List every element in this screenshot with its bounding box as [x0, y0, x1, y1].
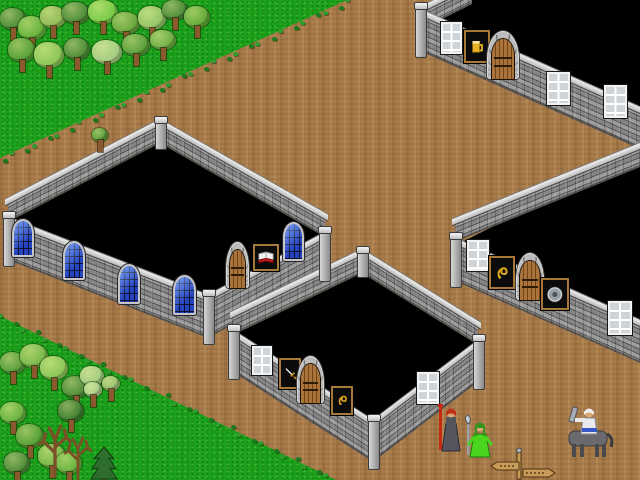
- canopy-highlight: [62, 2, 90, 24]
- grass-edge-tuft: [54, 134, 59, 138]
- post-cap: [472, 334, 486, 342]
- post-cap: [449, 232, 463, 240]
- direction-signpost[interactable]: [489, 447, 559, 480]
- grass-edge-tuft: [231, 425, 236, 429]
- tree-trunk: [74, 22, 79, 34]
- grass-edge-tuft: [79, 354, 84, 358]
- tree-canopy: [34, 42, 64, 68]
- grass-edge-tuft: [63, 346, 68, 350]
- grass-edge-tuft: [137, 98, 142, 102]
- tree-trunk: [47, 66, 52, 78]
- canopy-highlight: [8, 38, 36, 62]
- grass-edge-tuft: [48, 136, 53, 140]
- lattice-window: [467, 240, 489, 271]
- tavern-building-door[interactable]: [487, 31, 519, 79]
- door-hinge: [231, 274, 244, 276]
- tree-canopy: [184, 6, 210, 28]
- tree-trunk: [101, 22, 106, 34]
- library-building-corner-post: [319, 230, 331, 282]
- grass-edge-tuft: [20, 328, 25, 332]
- canopy-highlight: [64, 38, 90, 60]
- library-building-sign-book[interactable]: [253, 244, 279, 271]
- grass-edge-tuft: [233, 52, 238, 56]
- tree-trunk: [173, 18, 178, 30]
- grass-edge-tuft: [339, 6, 344, 10]
- weapon-shop-building-corner-post: [473, 338, 485, 390]
- grass-edge-tuft: [144, 386, 149, 390]
- tree-trunk: [109, 389, 114, 401]
- tree-canopy: [4, 452, 30, 474]
- sword-icon: [283, 362, 298, 384]
- grass-edge-tuft: [166, 83, 171, 87]
- tree-trunk: [20, 60, 25, 72]
- grass-edge-tuft: [25, 149, 30, 153]
- gold-crest-icon: [335, 390, 350, 411]
- canopy-highlight: [122, 34, 150, 56]
- shield-icon: [545, 283, 565, 306]
- deciduous-tree: [8, 38, 36, 74]
- door-hinge: [522, 286, 538, 288]
- lattice-window: [417, 372, 439, 404]
- mug-icon: [468, 35, 486, 59]
- door-hinge: [522, 279, 538, 281]
- grass-edge-tuft: [255, 42, 260, 46]
- stained-glass-window: [283, 222, 304, 261]
- game-viewport[interactable]: [0, 0, 640, 480]
- tree-trunk: [32, 366, 37, 378]
- grass-edge-tuft: [278, 29, 283, 33]
- tree-trunk: [105, 62, 110, 74]
- stained-glass-window: [12, 219, 34, 257]
- grass-edge-tuft: [323, 11, 328, 15]
- tree-canopy: [8, 38, 36, 62]
- grass-edge-tuft: [211, 59, 216, 63]
- grass-edge-tuft: [252, 439, 257, 443]
- grass-edge-tuft: [215, 423, 220, 427]
- grass-edge-tuft: [209, 418, 214, 422]
- grass-edge-tuft: [274, 449, 279, 453]
- tree-trunk: [51, 26, 56, 38]
- post-cap: [154, 116, 168, 124]
- door-hinge: [231, 267, 244, 269]
- weapon-shop-building-sign-crest[interactable]: [331, 386, 353, 415]
- grass-edge-tuft: [280, 455, 285, 459]
- grass-edge-tuft: [3, 159, 8, 163]
- signpost-icon: [489, 447, 559, 480]
- deciduous-tree: [62, 2, 90, 36]
- wooden-door: [492, 39, 514, 79]
- grass-edge-tuft: [272, 37, 277, 41]
- post-cap: [414, 2, 428, 10]
- grass-edge-tuft: [0, 314, 3, 318]
- grass-edge-tuft: [166, 393, 171, 397]
- tree-canopy: [0, 402, 26, 424]
- grass-edge-tuft: [121, 103, 126, 107]
- library-building-door[interactable]: [226, 242, 249, 288]
- armoury-building-sign-crest[interactable]: [489, 256, 515, 289]
- door-hinge: [494, 65, 512, 67]
- grass-edge-tuft: [296, 457, 301, 461]
- wooden-door: [520, 261, 539, 300]
- post-cap: [202, 289, 216, 297]
- weapon-shop-building-corner-post: [357, 250, 369, 278]
- grass-edge-tuft: [106, 370, 111, 374]
- grass-edge-tuft: [150, 391, 155, 395]
- deciduous-tree: [34, 42, 64, 80]
- post-cap: [356, 246, 370, 254]
- grass-edge-tuft: [144, 90, 149, 94]
- tree-trunk: [52, 378, 57, 390]
- grass-edge-tuft: [93, 118, 98, 122]
- weapon-shop-building-corner-post: [368, 418, 380, 470]
- grass-edge-tuft: [99, 113, 104, 117]
- canopy-highlight: [4, 452, 30, 474]
- wooden-door: [301, 364, 319, 403]
- pine-tree-icon: [90, 438, 118, 480]
- tree-trunk: [195, 26, 200, 38]
- lattice-window: [608, 301, 632, 335]
- weapon-shop-building-corner-post: [228, 328, 240, 380]
- weapon-shop-building-door[interactable]: [297, 356, 324, 403]
- library-building-corner-post: [155, 120, 167, 150]
- canopy-highlight: [112, 12, 140, 34]
- stained-glass-window: [118, 264, 140, 304]
- lattice-window: [252, 346, 272, 375]
- post-cap: [318, 226, 332, 234]
- grass-edge-tuft: [227, 57, 232, 61]
- tree-trunk: [15, 472, 20, 480]
- grass-edge-tuft: [171, 402, 176, 406]
- grass-edge-tuft: [249, 44, 254, 48]
- deciduous-tree: [150, 30, 176, 62]
- tree-trunk: [161, 48, 166, 60]
- grass-edge-tuft: [258, 441, 263, 445]
- canopy-highlight: [0, 402, 26, 424]
- tree-canopy: [64, 38, 90, 60]
- grass-edge-tuft: [187, 407, 192, 411]
- deciduous-tree: [122, 34, 150, 68]
- armoury-building-sign-shield[interactable]: [541, 278, 569, 310]
- grass-edge-tuft: [115, 105, 120, 109]
- canopy-highlight: [150, 30, 176, 50]
- grass-edge-tuft: [85, 359, 90, 363]
- tree-canopy: [92, 40, 122, 64]
- tree-trunk: [98, 140, 103, 152]
- gold-crest-icon: [493, 261, 511, 285]
- door-hinge: [303, 382, 318, 384]
- post-cap: [2, 211, 16, 219]
- deciduous-tree: [64, 38, 90, 72]
- wooden-door: [230, 250, 246, 288]
- tree-trunk: [91, 395, 96, 407]
- canopy-highlight: [34, 42, 64, 68]
- deciduous-tree: [84, 382, 102, 409]
- open-book-icon: [257, 248, 275, 267]
- deciduous-tree: [102, 376, 120, 403]
- library-building-corner-post: [203, 293, 215, 345]
- lattice-window: [441, 22, 462, 54]
- grass-edge-tuft: [32, 144, 37, 148]
- tree-canopy: [122, 34, 150, 56]
- armoury-building-door[interactable]: [516, 253, 544, 300]
- grass-edge-tuft: [160, 88, 165, 92]
- lattice-window: [547, 72, 570, 105]
- tree-trunk: [75, 58, 80, 70]
- deciduous-tree: [4, 452, 30, 480]
- armoury-building-corner-post: [450, 236, 462, 288]
- stained-glass-window: [173, 275, 196, 315]
- tavern-building-corner-post: [415, 6, 427, 58]
- grass-edge-tuft: [101, 362, 106, 366]
- deciduous-tree: [92, 40, 122, 76]
- canopy-highlight: [92, 40, 122, 64]
- grass-edge-tuft: [36, 330, 41, 334]
- door-hinge: [303, 389, 318, 391]
- tree-canopy: [150, 30, 176, 50]
- grass-edge-tuft: [14, 322, 19, 326]
- deciduous-tree: [92, 128, 108, 154]
- tree-trunk: [11, 372, 16, 384]
- centaur[interactable]: [559, 404, 617, 460]
- tree-canopy: [62, 2, 90, 24]
- deciduous-tree: [184, 6, 210, 40]
- pine-tree: [90, 438, 118, 480]
- tree-canopy: [112, 12, 140, 34]
- post-cap: [367, 414, 381, 422]
- priest-with-red-staff[interactable]: [436, 402, 466, 454]
- lattice-window: [604, 85, 627, 118]
- door-hinge: [494, 57, 512, 59]
- canopy-highlight: [184, 6, 210, 28]
- stained-glass-window: [63, 241, 85, 280]
- grass-edge-tuft: [9, 151, 14, 155]
- grass-edge-tuft: [323, 473, 328, 477]
- tree-trunk: [134, 54, 139, 66]
- post-cap: [227, 324, 241, 332]
